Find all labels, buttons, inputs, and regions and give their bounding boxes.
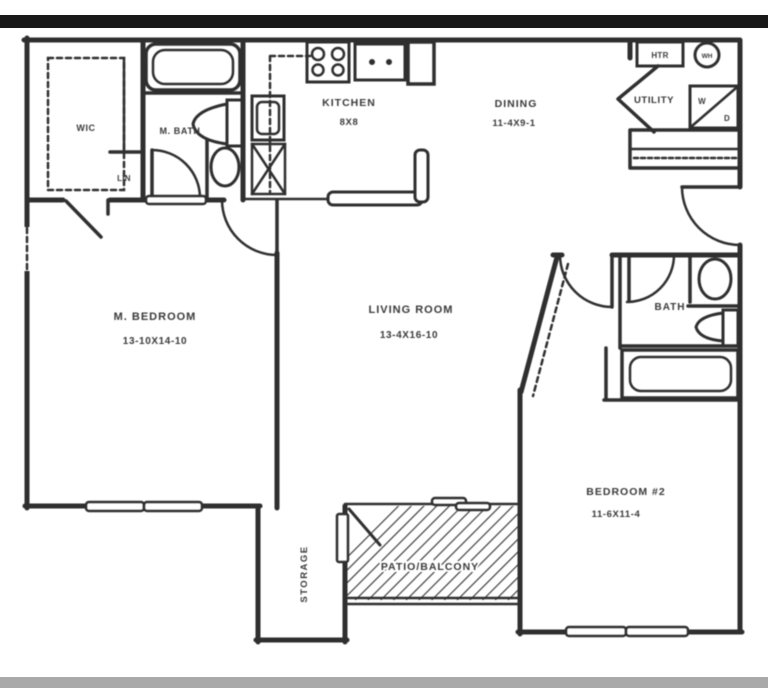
window-master-bedroom-left — [86, 502, 144, 511]
wic-label: WIC — [76, 123, 95, 133]
master-bedroom-label: M. BEDROOM — [114, 311, 197, 323]
master-bath-label: M. BATH — [159, 126, 200, 136]
counter-dot — [371, 61, 374, 64]
master-bedroom-dims: 13-10X14-10 — [123, 336, 187, 347]
dining-label: DINING — [495, 98, 538, 110]
bottom-bar — [0, 677, 768, 688]
patio-label: PATIO/BALCONY — [381, 561, 479, 573]
floor-plan-svg: WIC LIN M. BATH KITCHEN 8X8 DINING 11-4X… — [0, 0, 768, 688]
living-room-dims: 13-4X16-10 — [380, 330, 438, 341]
window-bedroom2-left — [566, 627, 626, 636]
bedroom2-dims: 11-6X11-4 — [592, 509, 641, 520]
washer-label: W — [698, 97, 706, 106]
bath-label: BATH — [654, 302, 685, 313]
living-room-label: LIVING ROOM — [369, 304, 454, 316]
window-master-bedroom-right — [144, 502, 202, 511]
patio-slider-inner — [456, 503, 490, 510]
burner-icon — [332, 48, 344, 60]
dining-dims: 11-4X9-1 — [492, 118, 535, 129]
top-bar — [0, 15, 768, 28]
lin-label: LIN — [117, 174, 131, 183]
bedroom2-label: BEDROOM #2 — [586, 486, 665, 498]
kitchen-dims: 8X8 — [340, 117, 359, 128]
heater-label: HTR — [651, 51, 668, 60]
counter-return — [415, 150, 428, 202]
storage-label: STORAGE — [299, 545, 310, 602]
floor-plan-page: WIC LIN M. BATH KITCHEN 8X8 DINING 11-4X… — [0, 0, 768, 688]
burner-icon — [312, 48, 324, 60]
storage-door — [337, 514, 348, 562]
water-heater-label: WH — [702, 53, 713, 60]
counter-dot — [388, 61, 391, 64]
window-bedroom2-right — [626, 627, 688, 636]
dryer-label: D — [724, 114, 730, 123]
kitchen-label: KITCHEN — [322, 97, 376, 109]
counter-peninsula — [328, 192, 422, 205]
master-bath-threshold — [146, 196, 206, 204]
utility-label: UTILITY — [634, 95, 674, 106]
burner-icon — [313, 65, 324, 76]
burner-icon — [333, 65, 344, 76]
